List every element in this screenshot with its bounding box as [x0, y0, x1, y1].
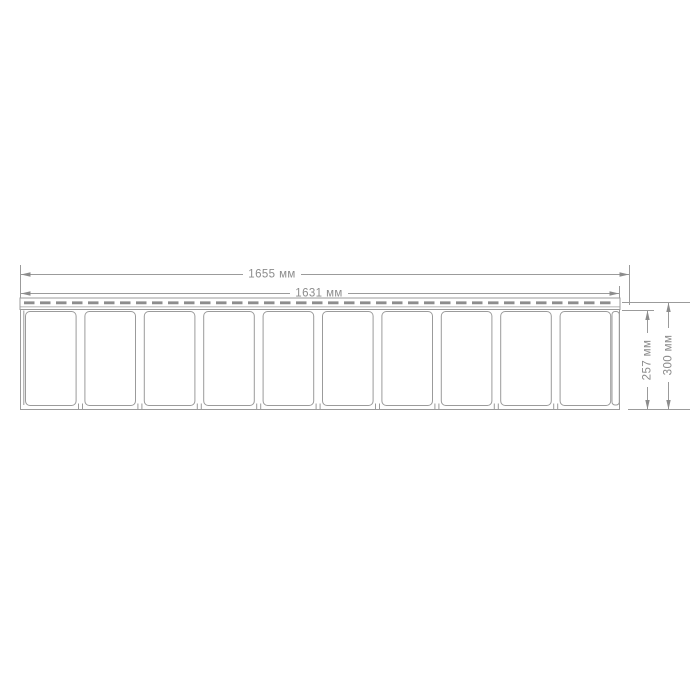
panel-section: [204, 312, 255, 406]
height-panel-arrow-top-icon: [645, 311, 649, 321]
panel-section: [263, 312, 314, 406]
panel-section: [382, 312, 433, 406]
width-outer-arrow-right-icon: [620, 272, 630, 276]
width-inner-label: 1631 мм: [295, 288, 342, 300]
panel-section: [441, 312, 492, 406]
width-inner-arrow-right-icon: [610, 291, 620, 295]
panel-section: [85, 312, 136, 406]
drawing-canvas: 1655 мм 1631 мм 257 мм 300 мм: [0, 0, 700, 700]
height-panel-label: 257 мм: [642, 340, 654, 381]
panel-section: [323, 312, 374, 406]
panel-section: [560, 312, 611, 406]
height-panel-arrow-bottom-icon: [645, 400, 649, 410]
panel-outline-group: [20, 298, 620, 410]
panel-section: [26, 312, 77, 406]
height-overall-label: 300 мм: [663, 335, 675, 376]
width-outer-arrow-left-icon: [21, 272, 31, 276]
height-overall-arrow-bottom-icon: [666, 400, 670, 410]
width-inner-arrow-left-icon: [21, 291, 31, 295]
height-overall-arrow-top-icon: [666, 303, 670, 313]
panel-section: [144, 312, 195, 406]
width-outer-label: 1655 мм: [248, 269, 295, 281]
panel-dimension-drawing: 1655 мм 1631 мм 257 мм 300 мм: [0, 0, 700, 700]
panel-section: [501, 312, 552, 406]
panel-right-edge-channel: [612, 312, 619, 406]
